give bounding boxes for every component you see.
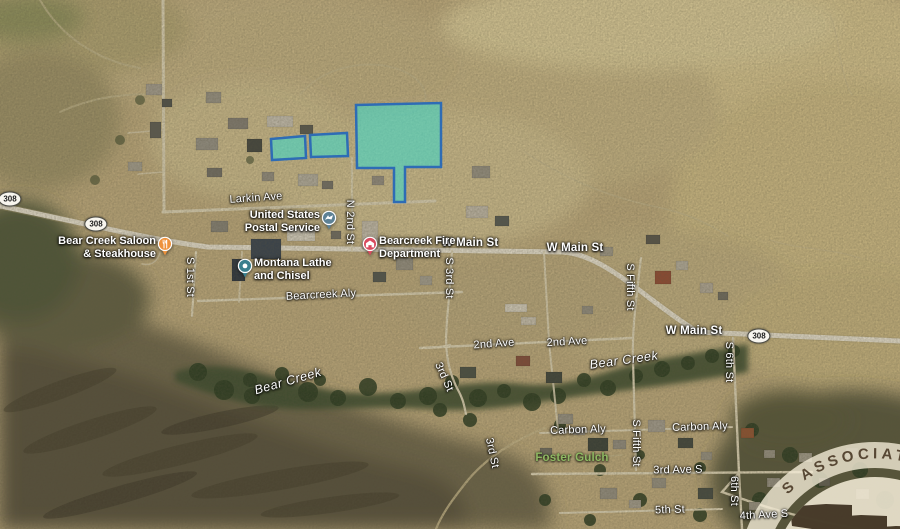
street-label: S 6th St [723,342,735,383]
street-label: 3rd Ave S [653,464,702,477]
route-shield-308: 308 [84,217,107,232]
street-label: 2nd Ave [546,335,588,349]
restaurant-icon [157,236,173,256]
street-label: 6th St [728,476,740,506]
street-label: Carbon Aly [550,423,606,437]
poi-label-line: United States [245,209,320,222]
street-label: 4th Ave S [739,508,788,523]
poi-label-line: Department [379,248,455,261]
street-label: Larkin Ave [229,190,283,206]
poi-label: United StatesPostal Service [245,209,320,235]
water-label: Bear Creek [589,348,660,371]
street-label: W Main St [547,242,604,254]
street-label: 2nd Ave [473,337,515,352]
street-label: Carbon Aly [672,420,728,434]
route-shield-308: 308 [747,329,770,344]
fire-station-icon [362,236,378,256]
poi-label: Bearcreek FireDepartment [379,235,455,261]
poi-label-line: and Chisel [254,270,332,283]
poi-label: Bear Creek Saloon& Steakhouse [58,235,156,261]
street-label: 3rd St [483,437,501,469]
street-label: S Fifth St [624,263,636,310]
satellite-map: S ASSOCIATION Larkin AveN 2nd StS 1st St… [0,0,900,529]
poi-label-line: Postal Service [245,222,320,235]
poi-label: Montana Latheand Chisel [254,257,332,283]
generic-dot-icon [237,258,253,278]
street-label: S 1st St [184,257,196,297]
street-label: S 3rd St [443,257,455,298]
route-shield-308: 308 [0,192,22,207]
street-label: W Main St [666,325,723,337]
terrain-label: Foster Gulch [535,452,608,464]
street-label: Bearcreek Aly [285,287,356,303]
map-labels-layer: Larkin AveN 2nd StS 1st StW Main StW Mai… [0,0,900,529]
street-label: S Fifth St [630,419,642,466]
street-label: N 2nd St [344,200,356,244]
poi-label-line: Bear Creek Saloon [58,235,156,248]
street-label: 3rd St [432,361,455,394]
poi-label-line: Montana Lathe [254,257,332,270]
street-label: 5th St [655,503,685,516]
poi-label-line: Bearcreek Fire [379,235,455,248]
poi-label-line: & Steakhouse [58,248,156,261]
water-label: Bear Creek [253,365,323,398]
usps-eagle-icon [321,210,337,230]
